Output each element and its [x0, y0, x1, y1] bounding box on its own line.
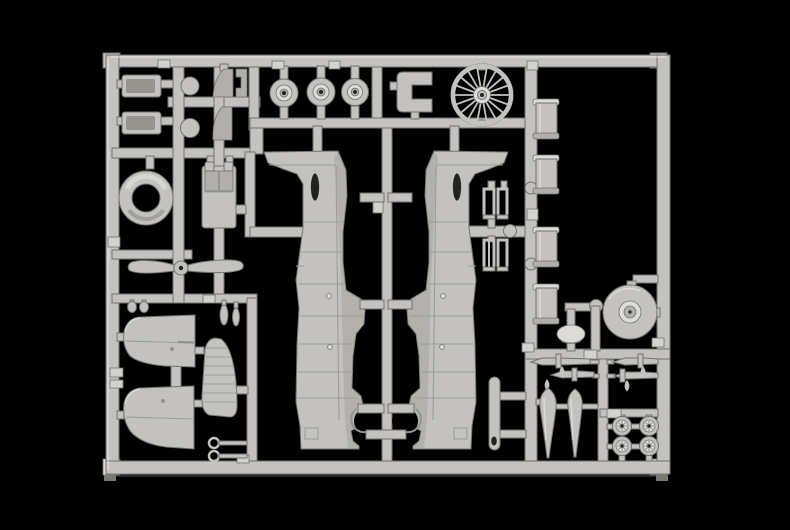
rudder-part	[200, 338, 240, 417]
small-wheel-parts	[613, 417, 659, 456]
disc-part-2	[181, 119, 200, 138]
bracket-part	[236, 69, 247, 97]
wing-panel-part-1	[124, 315, 195, 367]
tray-part-1	[122, 75, 161, 97]
scoop-part-1	[128, 302, 137, 313]
main-wheel-part-1	[270, 79, 298, 107]
cylinder-part-2	[533, 155, 559, 194]
hub-disc-part	[603, 285, 657, 339]
gun-part-4	[614, 369, 658, 382]
open-frame-part	[397, 72, 432, 112]
canopy-frame-part-3	[483, 240, 495, 271]
canopy-frame-part-2	[497, 189, 508, 219]
drop-tank-part-1	[540, 388, 556, 458]
sprue-drawing	[0, 0, 790, 530]
scoop-part-4	[233, 308, 240, 326]
cylinder-part-3	[533, 227, 559, 267]
bottom-rail	[106, 461, 670, 474]
dome-part	[557, 325, 585, 344]
right-rail	[657, 55, 670, 474]
main-wheel-part-3	[342, 79, 369, 106]
spoked-wheel-part	[451, 64, 513, 126]
gun-part-2	[551, 368, 594, 381]
cowling-ring-part	[119, 171, 173, 225]
scoop-part-3	[220, 305, 228, 325]
tow-ring-part-1	[209, 438, 247, 448]
cylinder-part-1	[533, 99, 559, 139]
small-wheel-part-4	[640, 437, 659, 456]
exhaust-pipe-part	[489, 377, 500, 450]
tray-part-2	[122, 112, 161, 134]
small-wheel-part-1	[613, 417, 632, 436]
tank-part	[202, 162, 236, 228]
wing-panel-part-2	[124, 386, 194, 449]
sprue-photo	[0, 0, 790, 530]
disc-part-1	[181, 77, 199, 95]
scoop-part-2	[140, 302, 149, 313]
drop-tank-part-2	[568, 389, 582, 457]
canopy-frame-part-1	[483, 189, 495, 219]
propeller-part	[128, 260, 243, 275]
small-wheel-part-2	[640, 417, 659, 436]
small-wheel-part-3	[613, 437, 632, 456]
canopy-frame-part-4	[497, 240, 508, 271]
cylinder-part-4	[533, 284, 559, 324]
main-wheel-part-2	[307, 78, 335, 106]
